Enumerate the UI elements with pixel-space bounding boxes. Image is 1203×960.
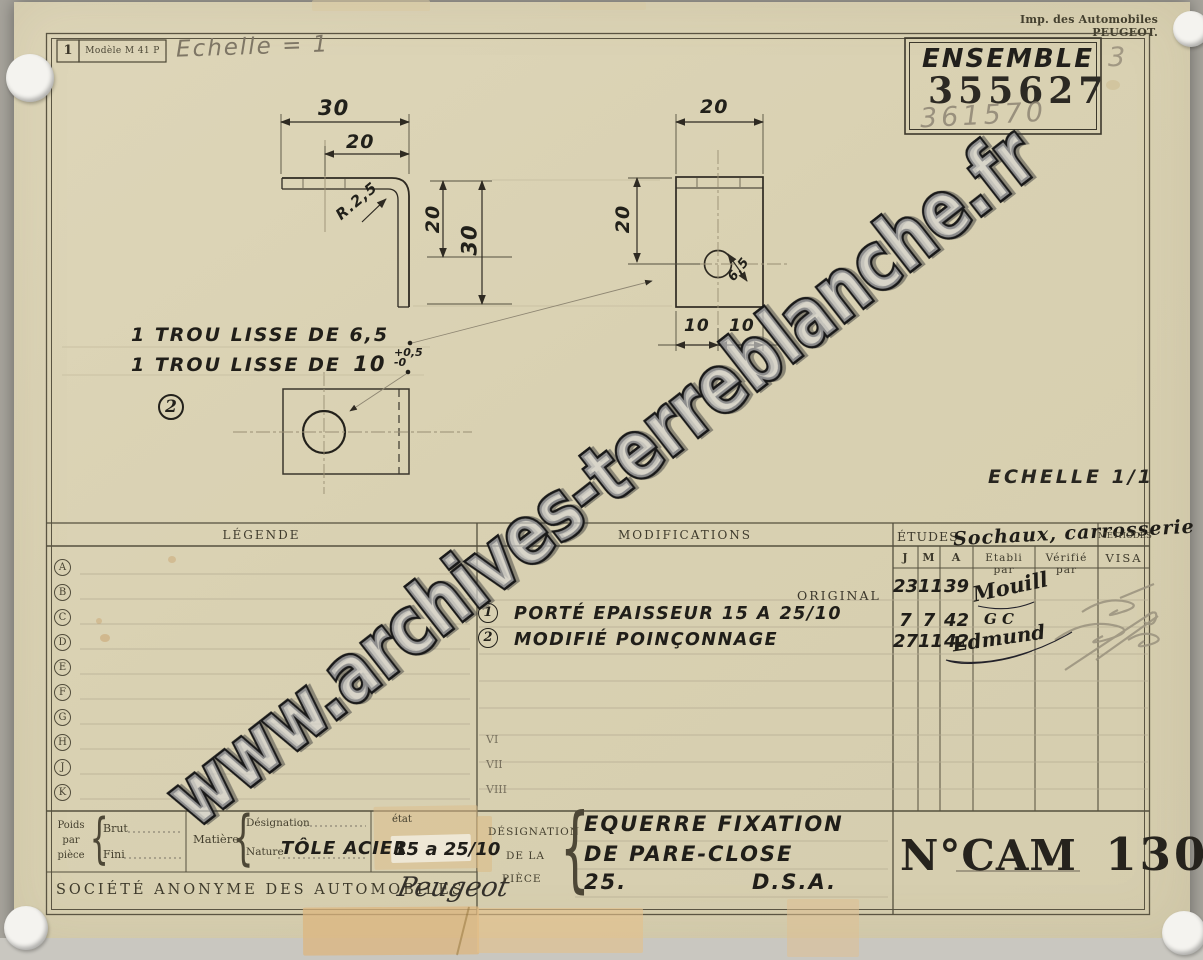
foxing-spot xyxy=(96,618,102,624)
fini-label: Fini xyxy=(103,848,125,861)
col-header-m: M xyxy=(918,551,940,564)
hole-note-2-text: 1 TROU LISSE DE xyxy=(131,354,341,376)
col-header-a: A xyxy=(940,551,973,564)
legend-row-h: H xyxy=(54,734,71,751)
col-header-visa: VISA xyxy=(1098,551,1150,565)
dim-side-inner-width: 20 xyxy=(346,131,374,153)
legend-row-e: E xyxy=(54,659,71,676)
dimension-lines xyxy=(281,122,763,345)
col-header-j: J xyxy=(893,551,918,564)
modification-entry-2: MODIFIÉ POINÇONNAGE xyxy=(514,630,778,650)
punch-hole-top-left xyxy=(6,54,54,102)
modifications-title: MODIFICATIONS xyxy=(477,528,893,542)
tape-strip-top-2 xyxy=(560,2,646,10)
brut-label: Brut xyxy=(103,822,128,835)
ensemble-pencil-mark: 3 xyxy=(1108,42,1125,73)
dim-hole-offset-left: 10 xyxy=(684,316,710,336)
hole-note-2: 1 TROU LISSE DE 10 +0,5 -0 xyxy=(131,352,423,376)
drawing-number-prefix: N°CAM xyxy=(900,831,1077,880)
hole-note-2-value: 10 xyxy=(353,352,386,376)
etat-value: 15 a 25/10 xyxy=(394,839,500,860)
drawing-number-value: 130 xyxy=(1105,828,1203,881)
piece-block-label-3: PIÈCE xyxy=(502,873,542,885)
dim-side-height: 30 xyxy=(458,224,482,255)
roman-row-vii: VII xyxy=(486,758,503,771)
sheet-number: 1 xyxy=(57,40,79,62)
tape-stain-bottom-right-part xyxy=(477,908,643,953)
legend-row-j: J xyxy=(54,759,71,776)
leader-dot-1 xyxy=(408,341,413,346)
nature-value: TÔLE ACIER xyxy=(281,838,408,859)
dim-hole-offset-right: 10 xyxy=(729,316,755,336)
centerlines xyxy=(62,140,788,494)
piece-line-3a: 25. xyxy=(584,870,627,894)
tape-stain-bottom-left xyxy=(303,906,479,955)
hole-note-2-tolerance: +0,5 -0 xyxy=(394,348,423,368)
date-row2-m: 7 xyxy=(918,610,940,631)
dim-side-width: 30 xyxy=(318,96,349,120)
roman-row-vi: VI xyxy=(486,733,498,746)
legend-row-b: B xyxy=(54,584,71,601)
punch-hole-bottom-right xyxy=(1162,911,1203,955)
designation-label: Désignation xyxy=(246,817,310,829)
tape-stain-small-right xyxy=(787,899,859,957)
date-row1-a: 39 xyxy=(940,576,973,597)
date-row3-j: 27 xyxy=(893,631,918,652)
legend-title: LÉGENDE xyxy=(46,528,477,542)
legend-row-c: C xyxy=(54,609,71,626)
modification-marker-1: 1 xyxy=(478,603,498,623)
tape-strip-top-1 xyxy=(312,0,430,11)
etudes-title: ÉTUDES xyxy=(897,529,959,544)
piece-block-label-2: DE LA xyxy=(506,850,545,862)
legend-row-g: G xyxy=(54,709,71,726)
brand-script: Peugeot xyxy=(395,872,512,903)
date-row2-j: 7 xyxy=(893,610,918,631)
modification-entry-1: PORTÉ EPAISSEUR 15 A 25/10 xyxy=(514,604,842,624)
detail-marker-2: 2 xyxy=(158,394,184,420)
printer-credit: Imp. des Automobiles PEUGEOT. xyxy=(998,13,1158,39)
legend-row-k: K xyxy=(54,784,71,801)
front-view xyxy=(676,177,763,307)
date-row1-j: 23 xyxy=(893,576,918,597)
piece-line-2: DE PARE-CLOSE xyxy=(584,842,793,866)
punch-hole-bottom-left xyxy=(4,906,48,950)
pencil-scale-note: Echelle = 1 xyxy=(176,31,330,62)
original-label: ORIGINAL xyxy=(797,588,881,603)
date-row1-m: 11 xyxy=(918,576,940,597)
legend-row-a: A xyxy=(54,559,71,576)
roman-row-viii: VIII xyxy=(486,783,507,796)
hole-note-1: 1 TROU LISSE DE 6,5 xyxy=(131,324,389,346)
legend-row-f: F xyxy=(54,684,71,701)
methodes-label: MÉTHODES xyxy=(1098,531,1150,541)
punch-hole-top-right xyxy=(1173,11,1203,47)
model-label: Modèle M 41 P xyxy=(79,40,166,62)
legend-row-d: D xyxy=(54,634,71,651)
bottom-view xyxy=(283,389,409,474)
etat-label: état xyxy=(392,814,412,825)
date-row3-m: 11 xyxy=(918,631,940,652)
foxing-spot xyxy=(168,556,176,563)
drawing-number: N°CAM 130 xyxy=(900,828,1203,881)
piece-line-3b: D.S.A. xyxy=(752,870,837,894)
scale-label: ECHELLE 1/1 xyxy=(988,466,1154,488)
dim-front-height: 20 xyxy=(612,205,634,233)
outer-frame xyxy=(47,34,1150,915)
ensemble-pencil-number: 361570 xyxy=(919,97,1048,135)
modification-marker-2: 2 xyxy=(478,628,498,648)
nature-label: Nature xyxy=(246,846,284,858)
poids-label: Poids par pièce xyxy=(50,818,92,863)
dim-front-width: 20 xyxy=(700,96,728,118)
scanned-blueprint-page: Imp. des Automobiles PEUGEOT. 1 Modèle M… xyxy=(0,0,1203,960)
dim-side-height-partial: 20 xyxy=(422,205,444,233)
date-row2-a: 42 xyxy=(940,610,973,631)
piece-line-1: EQUERRE FIXATION xyxy=(584,812,844,836)
tolerance-minus: -0 xyxy=(394,358,423,368)
foxing-spot xyxy=(100,634,110,642)
